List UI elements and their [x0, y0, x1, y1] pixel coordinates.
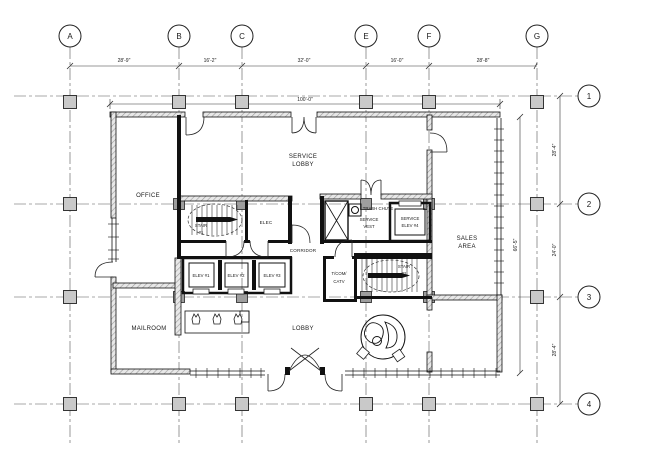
trash-chute-shaft — [325, 201, 361, 240]
room-label-elev1: ELEV #1 — [193, 273, 211, 278]
room-label-service-vest-2: VEST — [363, 224, 375, 229]
svg-text:1: 1 — [587, 92, 592, 101]
room-label-mailroom: MAILROOM — [131, 326, 166, 332]
dim-building-width: 100'-0" — [297, 97, 313, 103]
room-label-sales-1: SALES — [457, 236, 478, 242]
svg-text:A: A — [67, 32, 73, 41]
stair-2 — [362, 259, 419, 292]
east-curtainwall-mullions — [494, 129, 504, 283]
floor-plan-sheet: 28'-9" 16'-2" 32'-0" 16'-0" 28'-8" 28'-4… — [0, 0, 659, 472]
room-label-sales-2: AREA — [458, 244, 476, 250]
svg-text:3: 3 — [587, 293, 592, 302]
dim-b-c: 16'-2" — [204, 58, 217, 64]
room-label-service-vest-1: SERVICE — [360, 217, 379, 222]
room-label-stair1-2: #1 — [199, 230, 204, 235]
svg-text:G: G — [534, 32, 540, 41]
main-entry-doors — [285, 348, 325, 375]
dim-e-f: 16'-0" — [391, 58, 404, 64]
room-label-service-elev-2: ELEV #4 — [402, 223, 420, 228]
room-label-service-lobby-2: LOBBY — [292, 162, 314, 168]
svg-text:F: F — [427, 32, 432, 41]
room-label-service-lobby-1: SERVICE — [289, 154, 317, 160]
dimension-layer: 28'-9" 16'-2" 32'-0" 16'-0" 28'-8" 28'-4… — [67, 58, 563, 407]
room-label-lobby: LOBBY — [292, 326, 314, 332]
planter-icons — [192, 314, 242, 324]
room-label-trash-chute: TRASH CHUTE — [363, 206, 394, 211]
room-label-stair2-1: STAIR — [398, 264, 410, 269]
dim-3-4: 28'-4" — [552, 343, 558, 356]
grid-bubble-col-e: E — [355, 25, 377, 47]
grid-bubble-row-2: 2 — [578, 193, 600, 215]
dim-f-g: 28'-8" — [477, 58, 490, 64]
room-label-office: OFFICE — [136, 193, 160, 199]
lobby-round-feature — [357, 315, 405, 362]
dim-1-2: 28'-4" — [552, 143, 558, 156]
dim-a-b: 28'-9" — [118, 58, 131, 64]
grid-bubble-row-3: 3 — [578, 286, 600, 308]
floor-plan-drawing: 28'-9" 16'-2" 32'-0" 16'-0" 28'-8" 28'-4… — [0, 0, 659, 472]
exterior-walls — [110, 112, 502, 374]
grid-bubble-col-g: G — [526, 25, 548, 47]
dim-c-e: 32'-0" — [298, 58, 311, 64]
room-label-elev3: ELEV #3 — [264, 273, 282, 278]
room-label-telecom-1: T/COM/ — [331, 271, 347, 276]
stair-1 — [188, 204, 242, 236]
svg-text:C: C — [239, 32, 245, 41]
room-label-stair2-2: #2 — [402, 271, 407, 276]
furniture-layer — [185, 311, 405, 362]
lobby-counter — [185, 311, 249, 333]
svg-text:B: B — [176, 32, 181, 41]
grid-bubble-col-f: F — [418, 25, 440, 47]
grid-lines — [14, 47, 578, 443]
svg-text:2: 2 — [587, 200, 592, 209]
room-label-service-elev-1: SERVICE — [401, 216, 420, 221]
svg-text:4: 4 — [587, 400, 592, 409]
svg-text:E: E — [363, 32, 368, 41]
grid-bubble-col-b: B — [168, 25, 190, 47]
column-layer — [64, 96, 544, 411]
grid-bubble-col-c: C — [231, 25, 253, 47]
grid-bubble-row-4: 4 — [578, 393, 600, 415]
room-label-elec: ELEC — [260, 220, 273, 225]
room-label-stair1-1: STAIR — [195, 223, 207, 228]
dim-building-depth: 66'-5" — [513, 238, 519, 251]
grid-bubble-row-1: 1 — [578, 85, 600, 107]
room-label-telecom-2: CATV — [333, 279, 344, 284]
room-label-elev2: ELEV #2 — [228, 273, 246, 278]
grid-bubble-col-a: A — [59, 25, 81, 47]
dim-2-3: 24'-0" — [552, 243, 558, 256]
grid-bubbles: A B C E F G 1 2 3 4 — [59, 25, 600, 415]
storefront-mullions — [196, 368, 496, 378]
room-label-corridor: CORRIDOR — [290, 248, 317, 253]
